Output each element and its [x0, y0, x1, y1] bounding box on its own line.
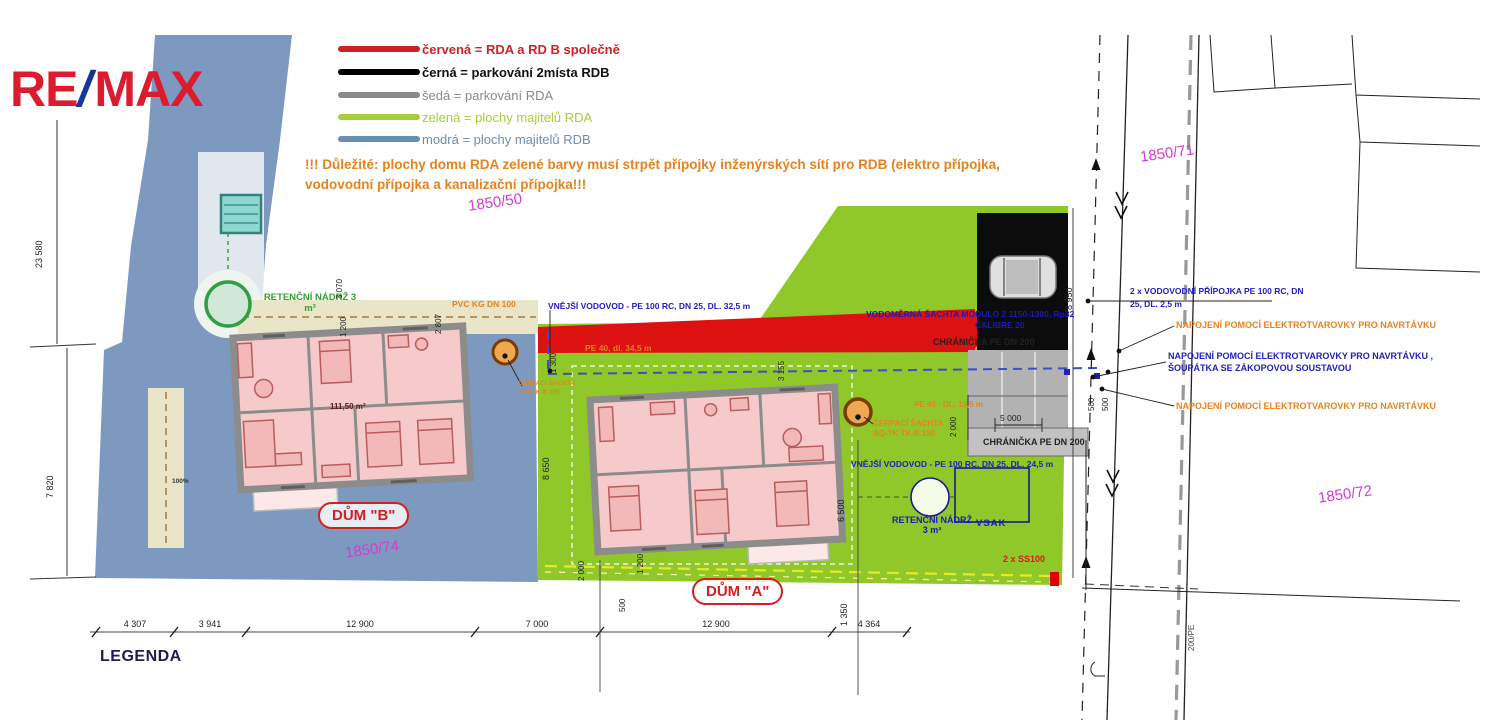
- legend-label-green: zelená = plochy majitelů RDA: [422, 110, 592, 125]
- dim-1200-a: 1 200: [636, 554, 645, 574]
- legend-swatch-red: [338, 46, 420, 52]
- dim-7820: 7 820: [45, 475, 55, 498]
- dim-1300: 1 300: [549, 353, 558, 373]
- dim-8650: 8 650: [541, 457, 551, 480]
- legend-item-red: červená = RDA a RD B společně: [338, 42, 620, 56]
- pripojka-label-1: 2 x VODOVODNÍ PŘÍPOJKA PE 100 RC, DN: [1130, 286, 1304, 296]
- legend-swatch-green: [338, 114, 420, 120]
- pump-shaft-b: [493, 340, 517, 364]
- house-b-pct: 100%: [172, 478, 189, 485]
- road-down-chevrons: [1106, 192, 1128, 496]
- remax-logo: RE / MAX: [10, 60, 202, 118]
- water-fitting: [1064, 369, 1070, 375]
- napojeni-blue-label-1: NAPOJENÍ POMOCÍ ELEKTROTVAROVKY PRO NAVR…: [1168, 351, 1433, 361]
- dim-4307: 4 307: [124, 619, 147, 629]
- ss100-marker: [1050, 572, 1059, 586]
- dim-2000-a: 2 000: [949, 417, 958, 437]
- legend-swatch-black: [338, 69, 420, 75]
- retention-tank-b: [206, 282, 250, 326]
- dim-8950: 8 950: [1064, 287, 1074, 310]
- house-b-area: 111,50 m²: [330, 402, 366, 411]
- dim-1200-b: 1 200: [339, 317, 348, 337]
- legend-label-black: černá = parkování 2místa RDB: [422, 65, 610, 80]
- dim-4364: 4 364: [858, 619, 881, 629]
- pe40-short-label: PE 40 - DL. 13,5 m: [914, 400, 983, 409]
- chranicka-label-1: CHRÁNIČKA PE DN 200: [933, 337, 1035, 347]
- dim-12900-1: 12 900: [346, 619, 374, 629]
- legend-swatch-gray: [338, 92, 420, 98]
- logo-max: MAX: [94, 60, 202, 118]
- pe40-long-label: PE 40, dl. 34,5 m: [585, 343, 652, 353]
- dim-6500: 6 500: [836, 499, 846, 522]
- house-a-label: DŮM "A": [692, 578, 783, 605]
- legend-item-black: černá = parkování 2místa RDB: [338, 65, 610, 79]
- dim-2000-b: 2 000: [577, 561, 586, 581]
- left-boundaries: [30, 120, 96, 579]
- important-warning-note: !!! Důležité: plochy domu RDA zelené bar…: [305, 155, 1040, 196]
- legend-label-red: červená = RDA a RD B společně: [422, 42, 620, 57]
- dim-1350: 1 350: [839, 603, 849, 626]
- road-center-dash-gray: [1176, 35, 1191, 720]
- dim-500-b: 500: [618, 599, 627, 612]
- dim-7000: 7 000: [526, 619, 549, 629]
- sachta-b-label-1: ČERPACÍ ŠACHTA: [518, 380, 575, 387]
- sachta-b-label-2: AQ-TK-B 150: [520, 389, 560, 396]
- napojeni-blue-label-2: ŠOUPÁTKA SE ZÁKOPOVOU SOUSTAVOU: [1168, 363, 1351, 373]
- logo-re: RE: [10, 60, 77, 118]
- vodovod-a-label: VNĚJŠÍ VODOVOD - PE 100 RC, DN 25, DL. 2…: [851, 459, 1053, 469]
- dim-3941: 3 941: [199, 619, 222, 629]
- vodovod-b-label: VNĚJŠÍ VODOVOD - PE 100 RC, DN 25, DL. 3…: [548, 301, 750, 311]
- vodomerna-label-1: VODOMĚRNÁ ŠACHTA MODULO 2 1150-1300, Rp3…: [866, 309, 1074, 319]
- legend-label-blue: modrá = plochy majitelů RDB: [422, 132, 591, 147]
- dim-500-road-2: 500: [1101, 398, 1110, 411]
- retencni-nadrz-a-label: RETENČNÍ NÁDRŽ 3 m³: [890, 515, 974, 535]
- legend-item-gray: šedá = parkování RDA: [338, 88, 553, 102]
- napojeni-orange-label-2: NAPOJENÍ POMOCÍ ELEKTROTVAROVKY PRO NAVR…: [1176, 401, 1436, 411]
- dim-23580: 23 580: [34, 240, 44, 268]
- ss100-label: 2 x SS100: [1003, 554, 1045, 564]
- house-b-label: DŮM "B": [318, 502, 409, 529]
- legend-item-green: zelená = plochy majitelů RDA: [338, 110, 592, 124]
- dim-3155: 3 155: [777, 361, 786, 381]
- road-lines: [1107, 35, 1199, 720]
- retention-tank-a: [911, 478, 949, 516]
- dim-500-road-1: 500: [1087, 398, 1096, 411]
- legenda-title: LEGENDA: [100, 648, 182, 666]
- pripojka-label-2: 25, DL. 2,5 m: [1130, 299, 1182, 309]
- dim-12900-2: 12 900: [702, 619, 730, 629]
- pump-shaft-a: [845, 399, 871, 425]
- dim-3070: 3 070: [335, 279, 344, 299]
- cerp-sachta-label-2: AQ-TK TK-B 150: [873, 429, 935, 438]
- vodomerna-label-2: CALIBRE 20: [975, 320, 1025, 330]
- pvc-label: PVC KG DN 100: [452, 299, 516, 309]
- legend-swatch-blue: [338, 136, 420, 142]
- legend-item-blue: modrá = plochy majitelů RDB: [338, 132, 591, 146]
- house-a-floorplan: [590, 387, 844, 572]
- napojeni-orange-label-1: NAPOJENÍ POMOCÍ ELEKTROTVAROVKY PRO NAVR…: [1176, 320, 1436, 330]
- dim-2807: 2 807: [434, 314, 443, 334]
- chranicka-label-2: CHRÁNIČKA PE DN 200: [983, 437, 1085, 447]
- car-icon: [990, 256, 1056, 298]
- legend-label-gray: šedá = parkování RDA: [422, 88, 553, 103]
- vsak-label: VSAK: [976, 518, 1006, 529]
- road-pipe-label: 200/PE: [1187, 625, 1196, 651]
- dim-5000: 5 000: [1000, 413, 1021, 423]
- site-plan-canvas: RE / MAX červená = RDA a RD B společně č…: [0, 0, 1485, 720]
- cerp-sachta-label-1: ČERPACÍ ŠACHTA: [873, 419, 943, 428]
